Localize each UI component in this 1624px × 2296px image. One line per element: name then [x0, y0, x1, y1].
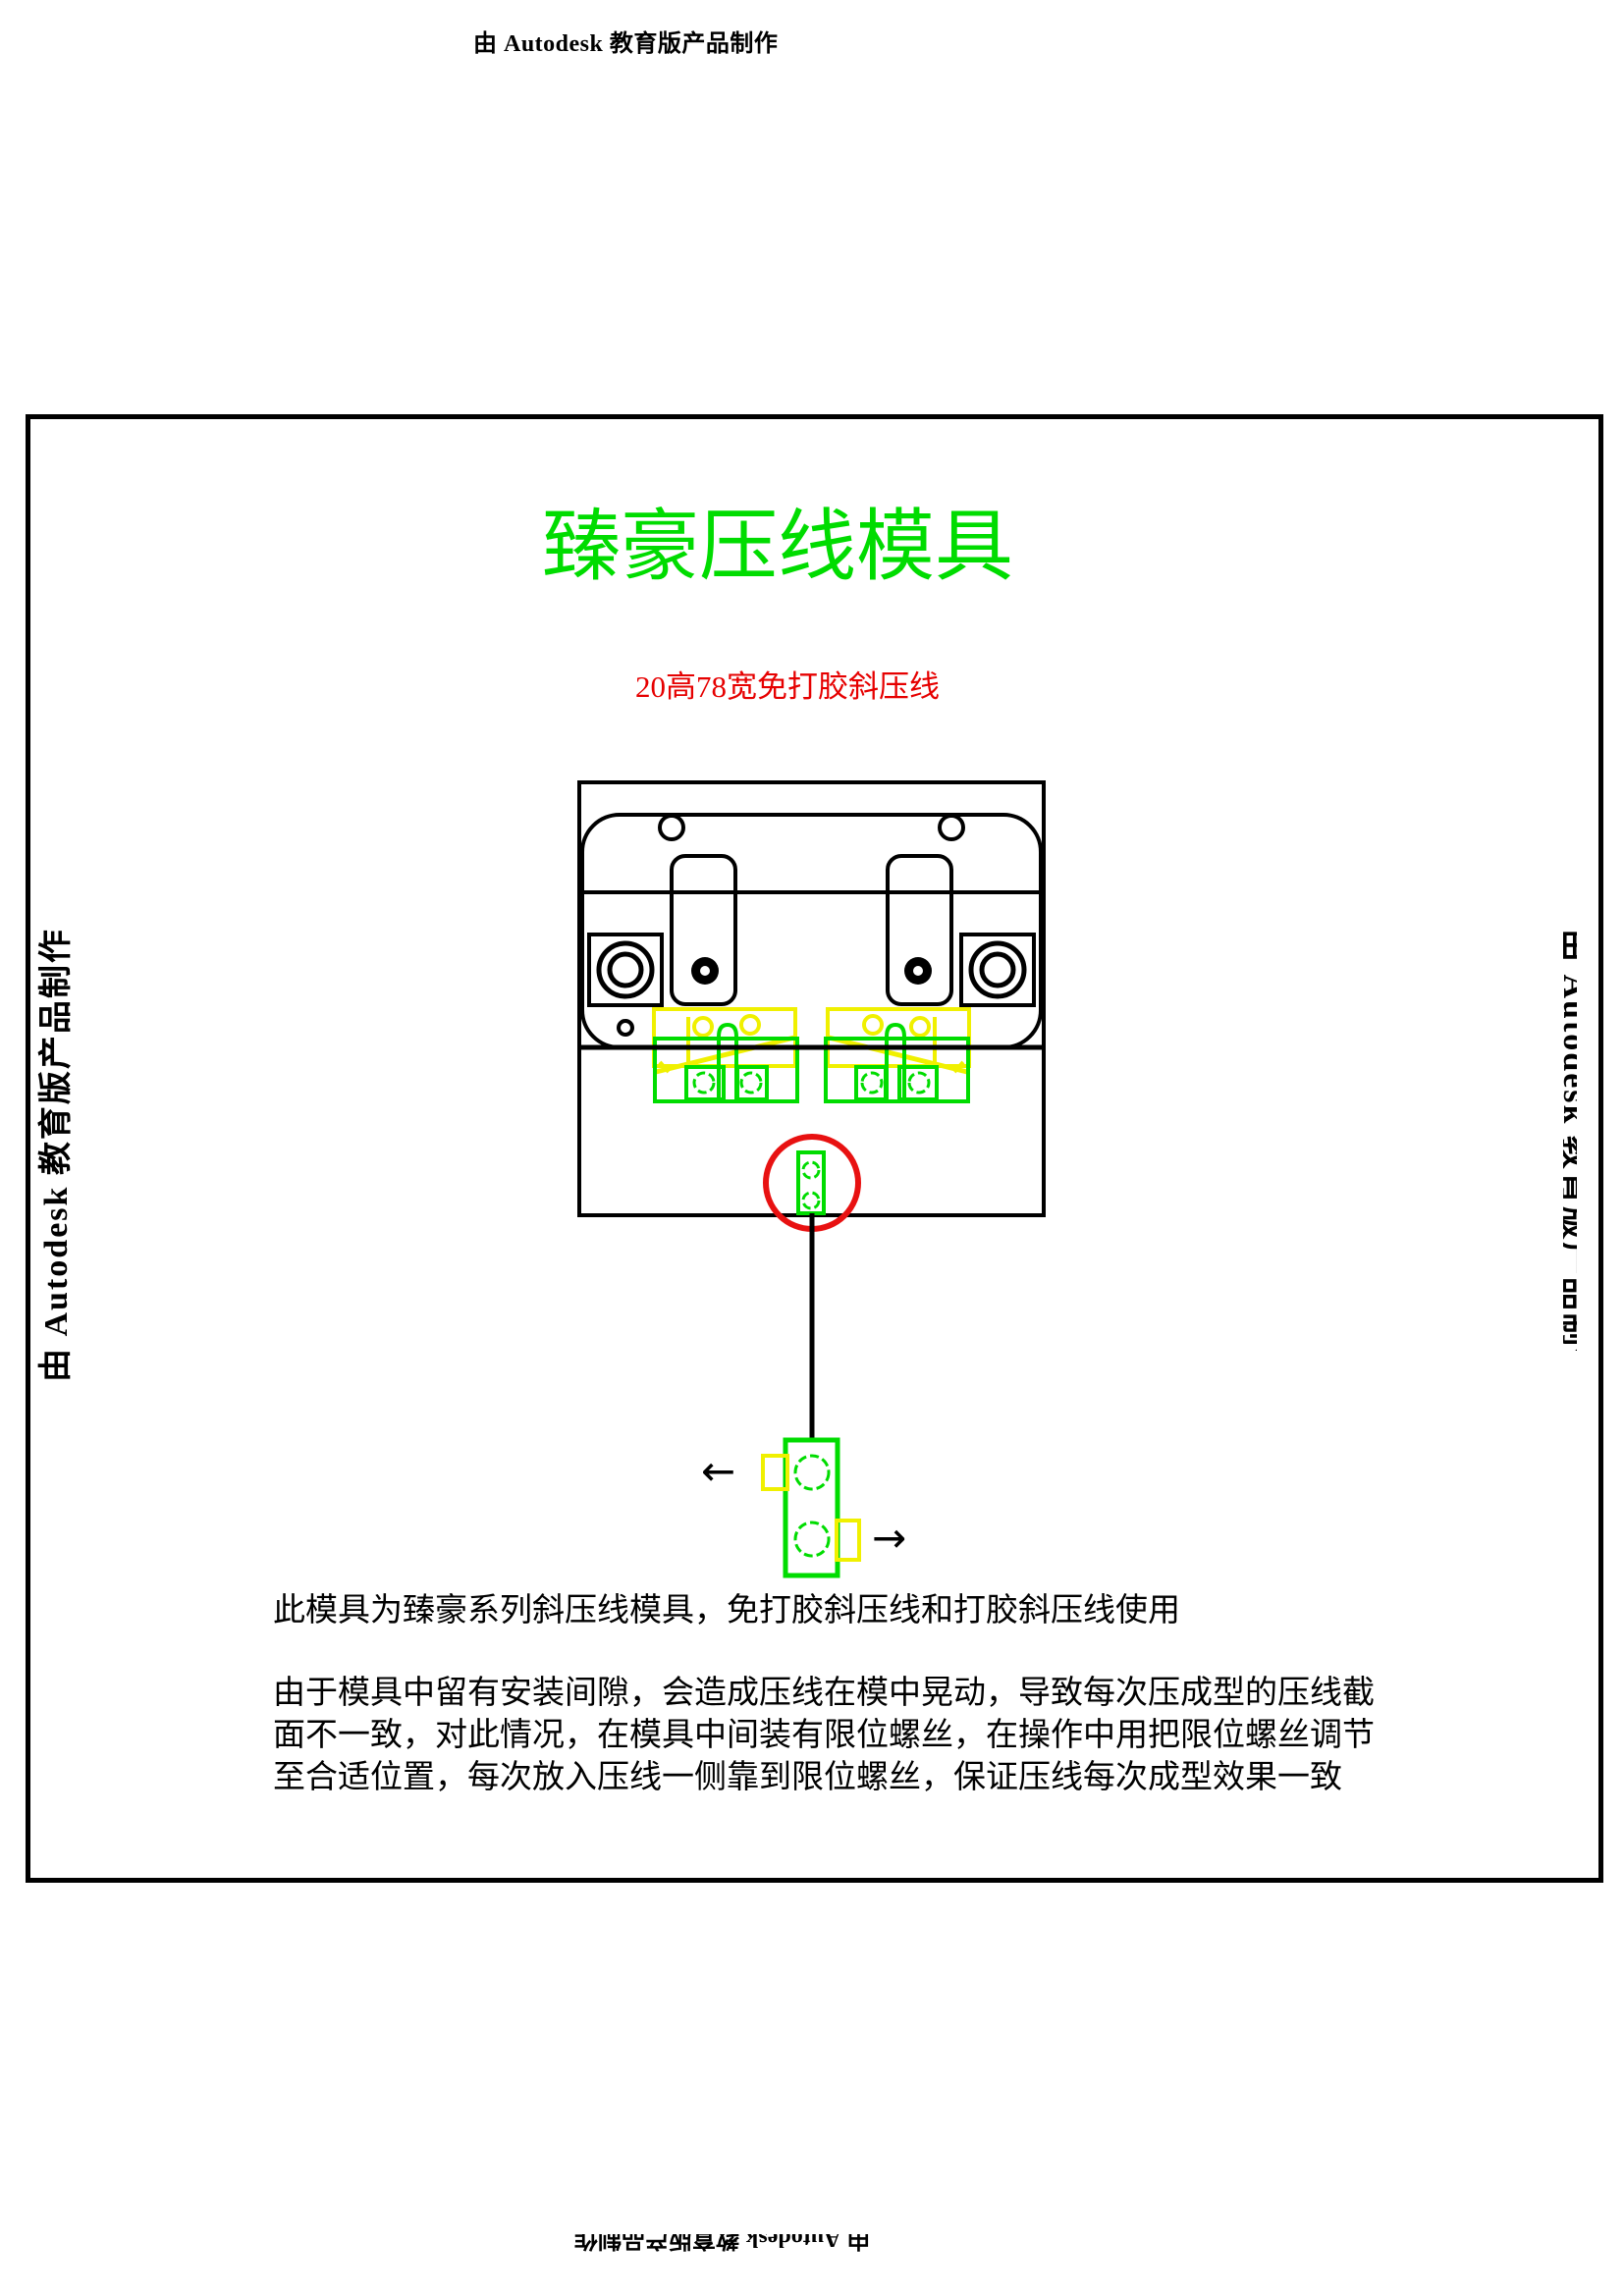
- detail-screw-hole-2: [795, 1522, 829, 1556]
- note-paragraph-2-line-2: 面不一致，对此情况，在模具中间装有限位螺丝，在操作中用把限位螺丝调节: [273, 1715, 1375, 1757]
- detail-screw-hole-1: [795, 1456, 829, 1489]
- pin-right-bore: [913, 966, 923, 976]
- clamp-assembly-left: [654, 1009, 797, 1101]
- mold-insert-stadium: [582, 815, 1041, 1047]
- pin-left-bore: [700, 966, 710, 976]
- dowel-hole-top-left: [660, 816, 683, 839]
- drawing-sheet: 由 Autodesk 教育版产品制作 由 Autodesk 教育版产品制作 由 …: [0, 0, 1624, 2296]
- clamp-assembly-right: [826, 1009, 969, 1101]
- small-hole-left: [619, 1021, 632, 1035]
- note-paragraph-2-line-1: 由于模具中留有安装间隙，会造成压线在模中晃动，导致每次压成型的压线截: [273, 1673, 1375, 1715]
- note-paragraph-2: 由于模具中留有安装间隙，会造成压线在模中晃动，导致每次压成型的压线截 面不一致，…: [273, 1673, 1375, 1799]
- bushing-left-outer: [599, 943, 652, 996]
- limit-screw-block: [798, 1152, 824, 1213]
- limit-screw-hole-1: [803, 1162, 819, 1178]
- note-paragraph-2-line-3: 至合适位置，每次放入压线一侧靠到限位螺丝，保证压线每次成型效果一致: [273, 1757, 1375, 1799]
- bushing-left-inner: [610, 954, 641, 986]
- mold-drawing: [0, 0, 1624, 2296]
- dowel-hole-top-right: [940, 816, 963, 839]
- bushing-right-inner: [982, 954, 1013, 986]
- note-paragraph-1: 此模具为臻豪系列斜压线模具，免打胶斜压线和打胶斜压线使用: [273, 1590, 1180, 1632]
- right-arrow-icon: →: [872, 1518, 906, 1559]
- limit-screw-hole-2: [803, 1193, 819, 1208]
- bushing-right-outer: [971, 943, 1024, 996]
- left-arrow-icon: ←: [701, 1451, 735, 1492]
- mold-plate-outline: [579, 782, 1044, 1215]
